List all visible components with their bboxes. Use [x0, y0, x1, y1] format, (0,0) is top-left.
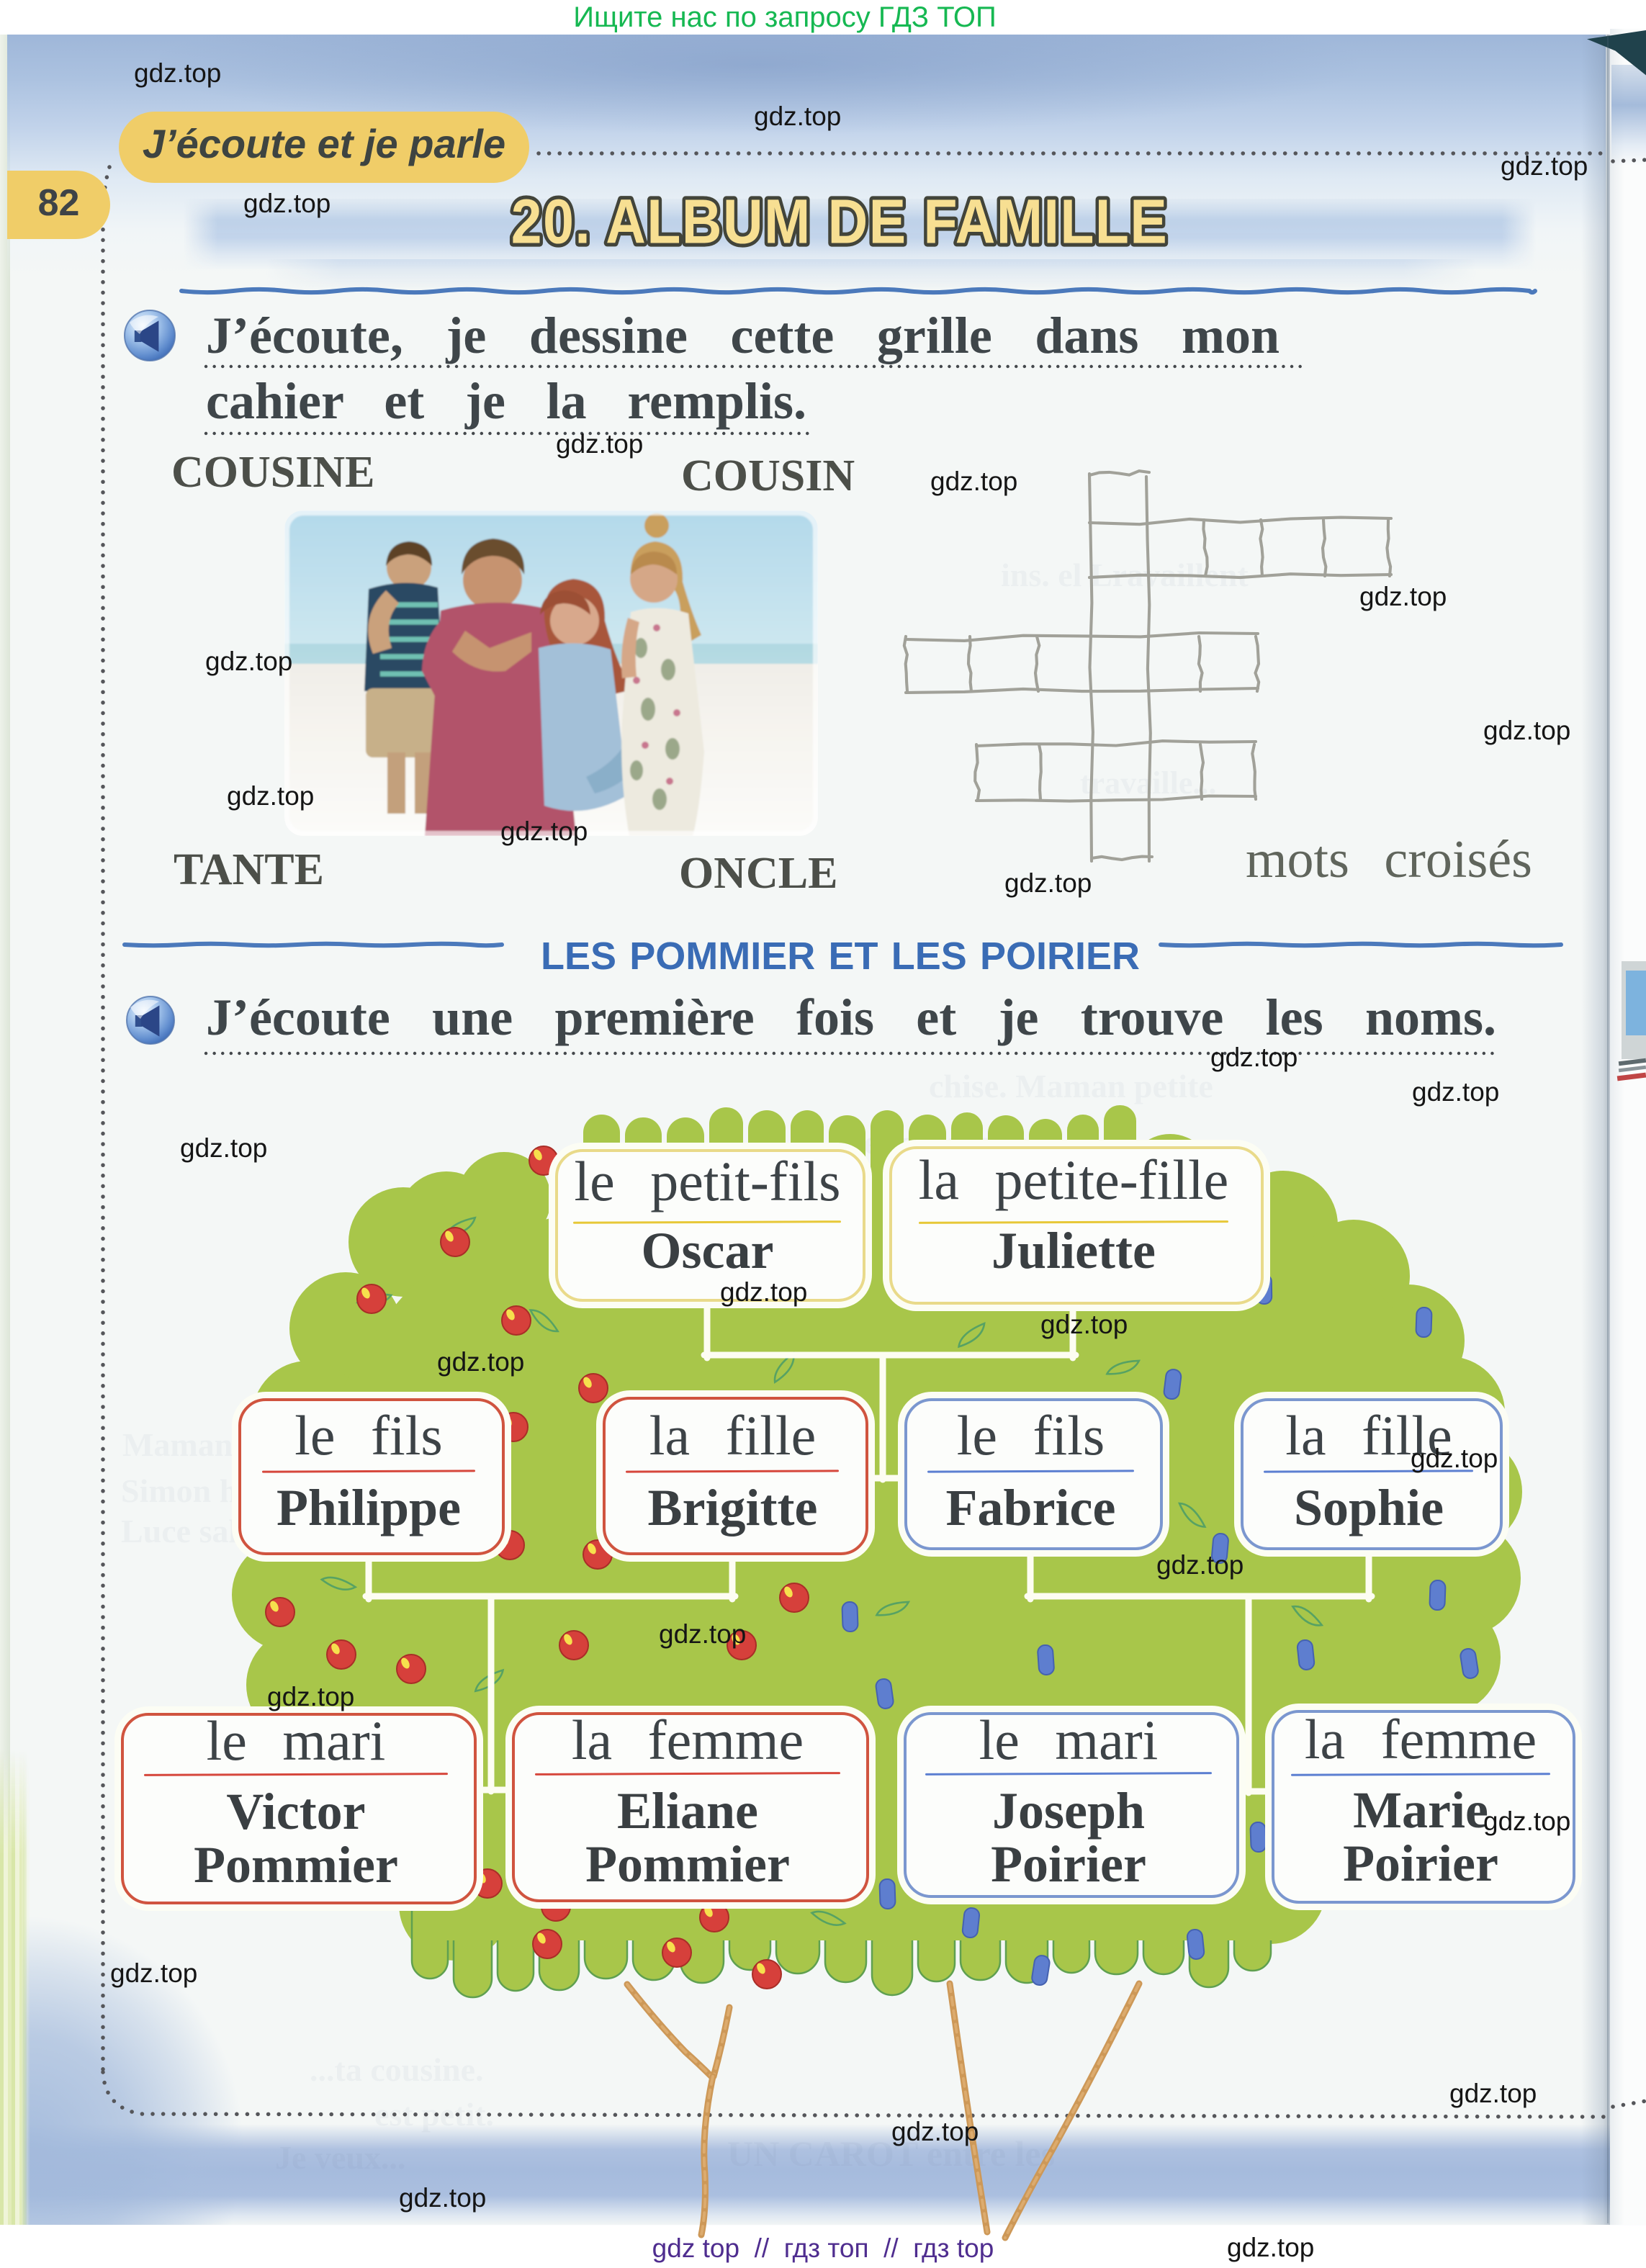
svg-text:20. ALBUM DE FAMILLE: 20. ALBUM DE FAMILLE [511, 187, 1169, 256]
